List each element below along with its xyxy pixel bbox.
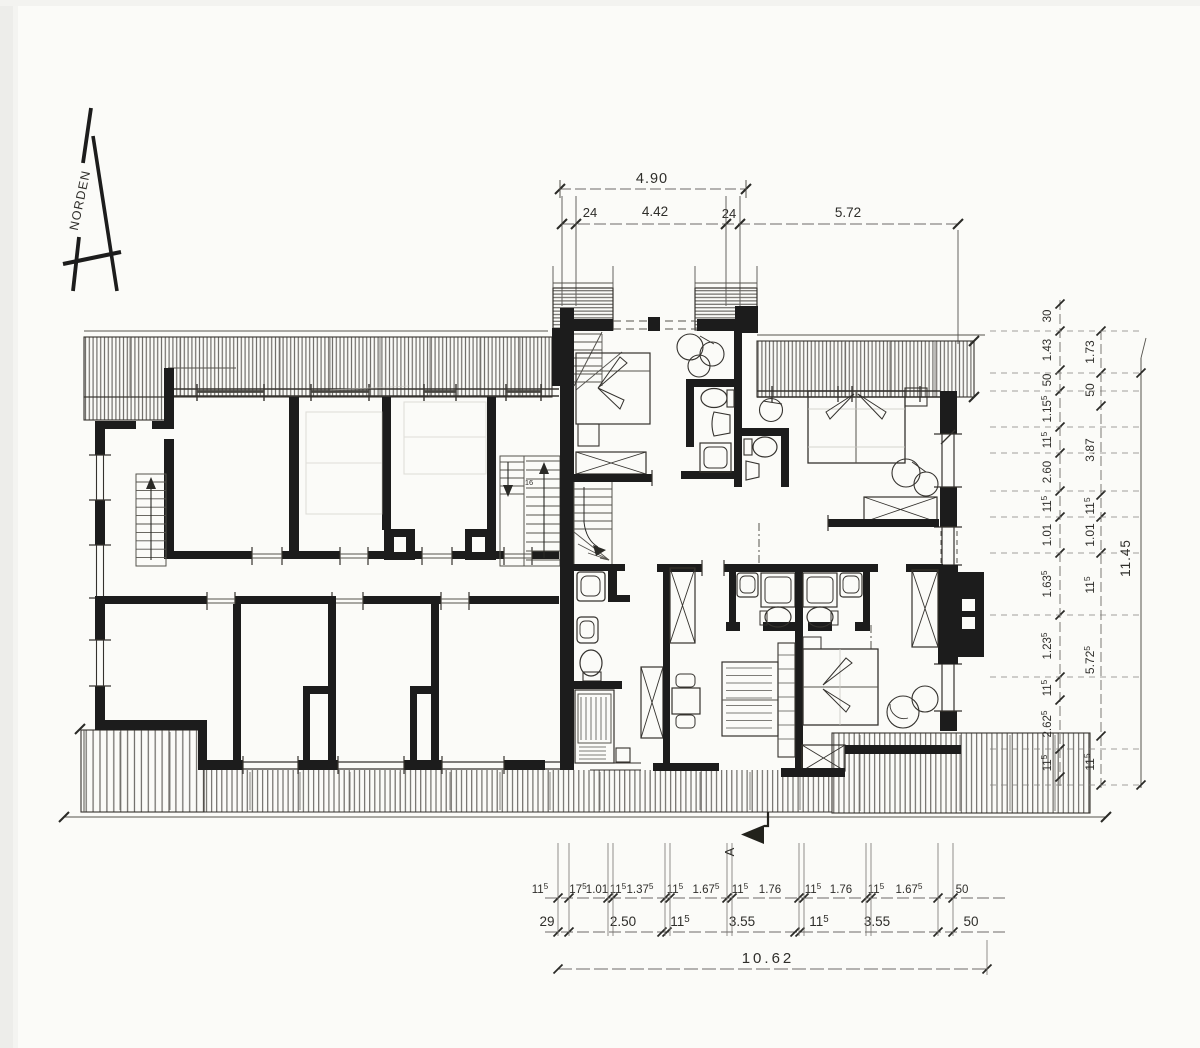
svg-text:4.90: 4.90 <box>636 171 668 187</box>
svg-text:50: 50 <box>963 914 978 929</box>
svg-text:24: 24 <box>583 205 597 220</box>
svg-text:50: 50 <box>1083 383 1097 397</box>
svg-text:2.50: 2.50 <box>610 914 636 929</box>
svg-text:3.55: 3.55 <box>864 914 890 929</box>
svg-text:5.72: 5.72 <box>835 205 861 220</box>
svg-text:3.55: 3.55 <box>729 914 755 929</box>
svg-text:10.62: 10.62 <box>742 950 795 967</box>
svg-text:A: A <box>722 847 737 856</box>
svg-text:2.60: 2.60 <box>1042 461 1054 483</box>
svg-text:1.76: 1.76 <box>830 884 852 896</box>
svg-text:1.73: 1.73 <box>1083 340 1097 364</box>
svg-text:1.01: 1.01 <box>586 884 608 896</box>
svg-text:3.87: 3.87 <box>1083 438 1097 462</box>
svg-text:16: 16 <box>525 478 533 487</box>
svg-text:50: 50 <box>1042 374 1054 387</box>
svg-text:11.45: 11.45 <box>1118 539 1133 577</box>
svg-text:4.42: 4.42 <box>642 204 668 219</box>
svg-text:1.43: 1.43 <box>1042 339 1054 361</box>
svg-text:30: 30 <box>1042 310 1054 323</box>
svg-text:24: 24 <box>722 206 736 221</box>
svg-text:50: 50 <box>956 884 969 896</box>
svg-text:29: 29 <box>539 914 554 929</box>
svg-text:1.01: 1.01 <box>1042 524 1054 546</box>
svg-text:1.01: 1.01 <box>1083 523 1097 547</box>
svg-text:1.76: 1.76 <box>759 884 781 896</box>
